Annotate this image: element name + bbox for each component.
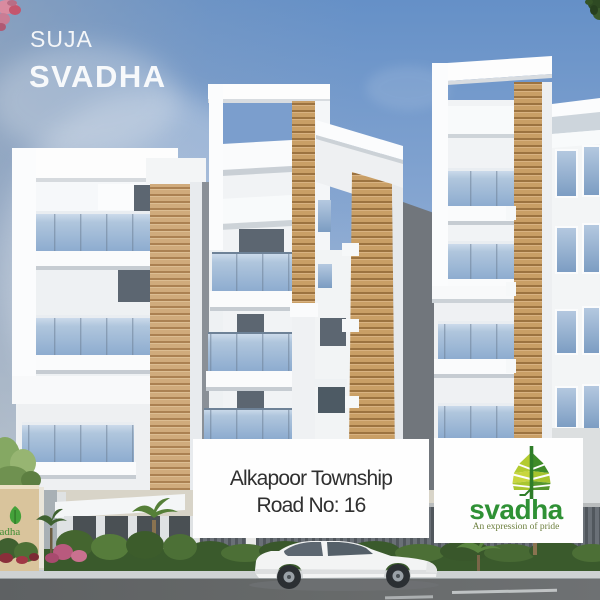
svg-text:vadha: vadha — [0, 526, 20, 538]
svg-text:SVADHA: SVADHA — [29, 59, 167, 94]
svg-text:An expression of pride: An expression of pride — [473, 521, 560, 532]
svg-text:svadha: svadha — [469, 494, 563, 525]
svg-text:SUJA: SUJA — [30, 26, 93, 52]
svg-text:Alkapoor Township: Alkapoor Township — [230, 467, 392, 490]
svg-text:Road No: 16: Road No: 16 — [256, 494, 365, 517]
